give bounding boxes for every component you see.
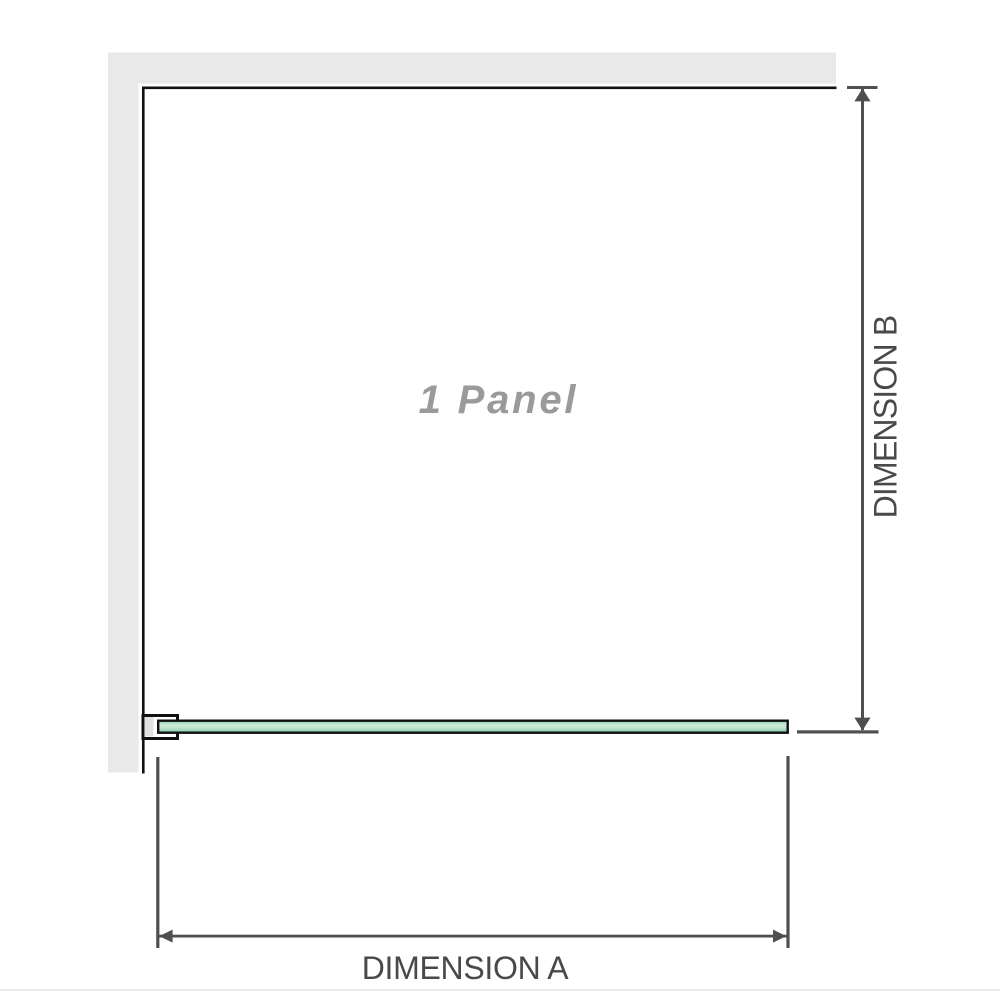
svg-text:DIMENSION A: DIMENSION A bbox=[362, 950, 569, 986]
svg-text:DIMENSION B: DIMENSION B bbox=[868, 316, 904, 519]
svg-text:1 Panel: 1 Panel bbox=[419, 378, 579, 422]
